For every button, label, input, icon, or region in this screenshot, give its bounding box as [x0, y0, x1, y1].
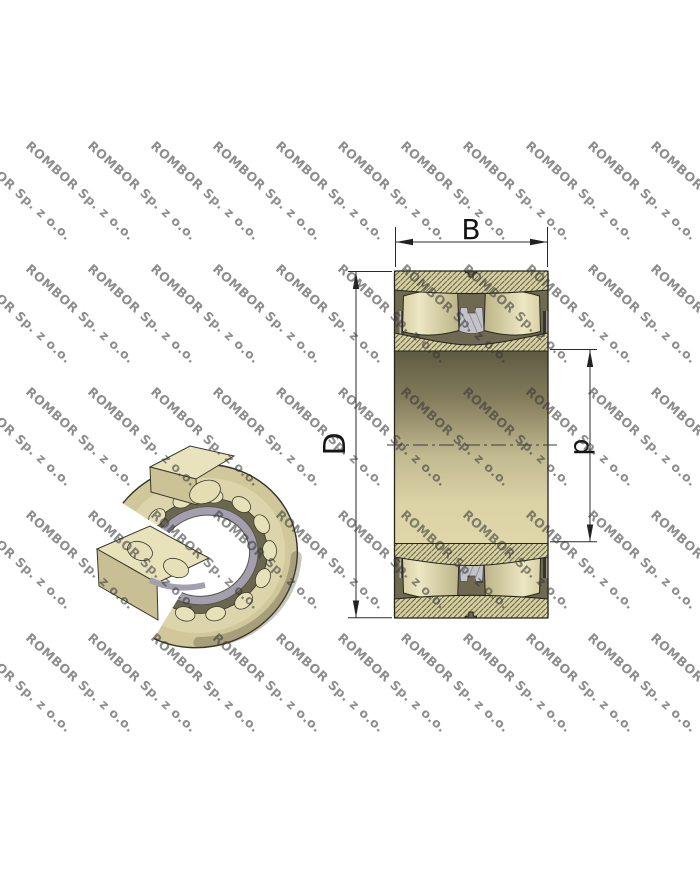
dimension-label-D: D [318, 432, 353, 455]
arrow-up [353, 272, 359, 289]
drawing-svg: B D d [0, 0, 700, 869]
screenshot-root: B D d ROMBOR Sp. z o.o.ROMBOR Sp. z o.o.… [0, 0, 700, 869]
arrow-up [587, 350, 593, 367]
arrow-down [587, 525, 593, 542]
section-view [387, 271, 557, 618]
arrow-right [530, 239, 547, 245]
bearing-3d-view [40, 429, 321, 685]
roller-top-left [403, 288, 460, 335]
roller-top-right [484, 288, 541, 335]
arrow-down [353, 601, 359, 618]
bore-surface [395, 351, 549, 544]
arrow-left [396, 239, 413, 245]
dimension-label-d: d [567, 438, 598, 455]
dimension-D [348, 272, 392, 618]
dimension-label-B: B [461, 213, 480, 246]
